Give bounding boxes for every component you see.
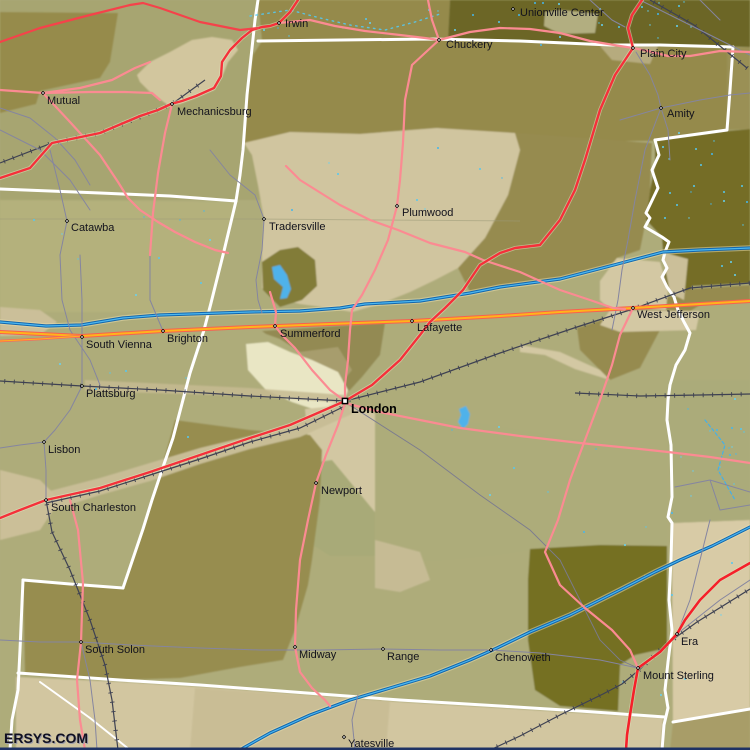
svg-text:Catawba: Catawba	[71, 222, 115, 234]
svg-text:Irwin: Irwin	[285, 18, 308, 30]
svg-text:Lisbon: Lisbon	[48, 444, 80, 456]
svg-text:Amity: Amity	[667, 108, 695, 120]
svg-text:Midway: Midway	[299, 649, 337, 661]
svg-text:West Jefferson: West Jefferson	[637, 309, 710, 321]
svg-text:ERSYS.COM: ERSYS.COM	[4, 730, 88, 746]
svg-text:Summerford: Summerford	[280, 328, 341, 340]
svg-text:Mount Sterling: Mount Sterling	[643, 670, 714, 682]
svg-text:South Solon: South Solon	[85, 644, 145, 656]
svg-text:Mechanicsburg: Mechanicsburg	[177, 106, 252, 118]
svg-text:Range: Range	[387, 651, 419, 663]
svg-text:Chenoweth: Chenoweth	[495, 652, 551, 664]
svg-text:London: London	[351, 402, 397, 416]
svg-text:Brighton: Brighton	[167, 333, 208, 345]
svg-text:Plain City: Plain City	[640, 48, 687, 60]
svg-text:Unionville Center: Unionville Center	[520, 7, 604, 19]
svg-text:Chuckery: Chuckery	[446, 39, 493, 51]
svg-text:Newport: Newport	[321, 485, 362, 497]
svg-text:Lafayette: Lafayette	[417, 322, 462, 334]
svg-text:Plumwood: Plumwood	[402, 207, 453, 219]
svg-text:South Charleston: South Charleston	[51, 502, 136, 514]
svg-text:Mutual: Mutual	[47, 95, 80, 107]
svg-text:Plattsburg: Plattsburg	[86, 388, 136, 400]
svg-text:Era: Era	[681, 636, 699, 648]
svg-text:Tradersville: Tradersville	[269, 221, 325, 233]
svg-text:South Vienna: South Vienna	[86, 339, 153, 351]
